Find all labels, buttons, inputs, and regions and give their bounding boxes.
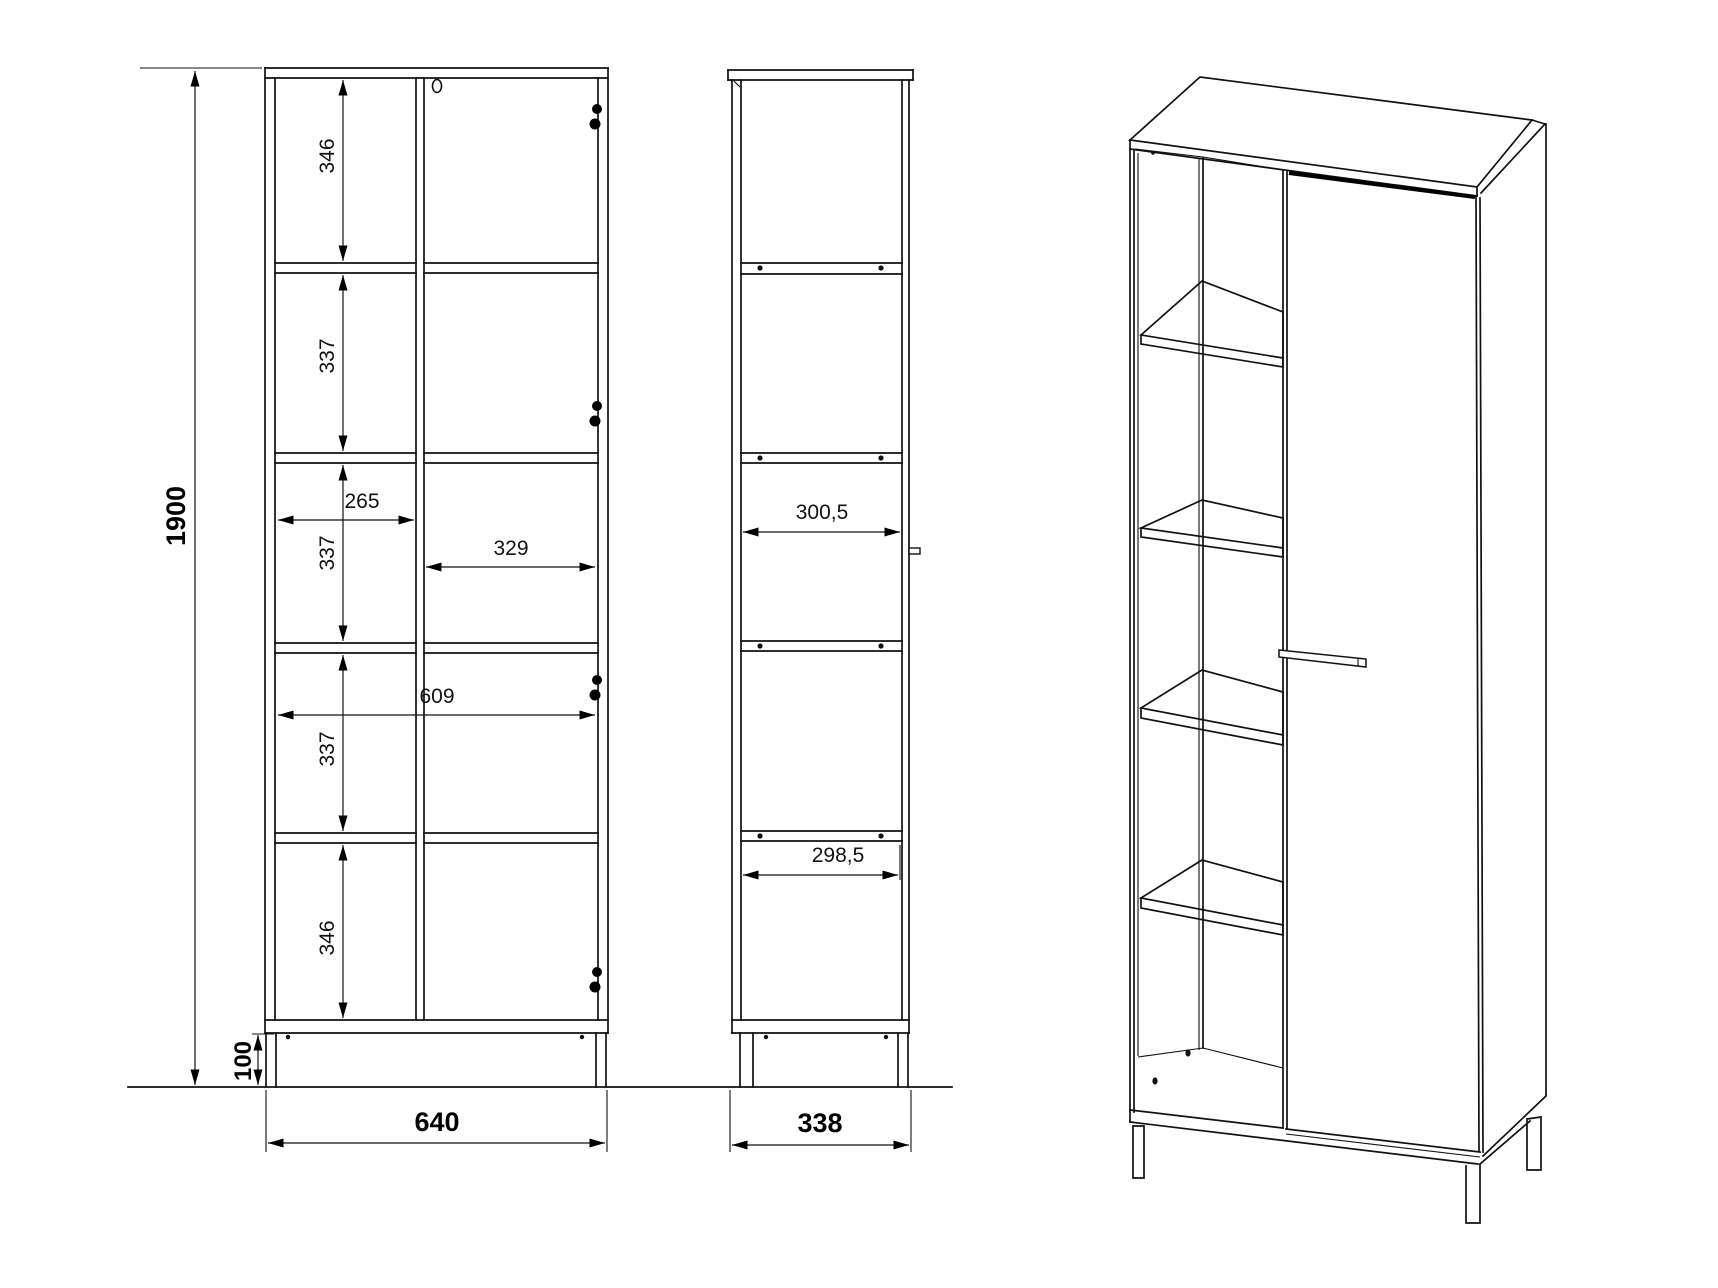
hinge-icon: [590, 967, 603, 993]
handle-3d: [1279, 650, 1366, 667]
shelf-3d: [1141, 860, 1283, 935]
cabinet-drawing: 1900 346 337 337 337 346 265 329 609 100…: [0, 0, 1718, 1288]
dim-overall-depth: 338: [797, 1108, 842, 1138]
door-bottom: [1286, 1129, 1480, 1152]
side-legs: [740, 1033, 908, 1087]
side-view: [728, 70, 920, 1087]
isometric-view: [1130, 77, 1546, 1223]
dim-leg-height: 100: [230, 1041, 257, 1081]
shelf-3d: [1141, 281, 1283, 367]
front-dimensions: 1900 346 337 337 337 346 265 329 609 100…: [140, 68, 607, 1152]
hinge-marks: [590, 104, 603, 993]
keyhole-icon: [433, 80, 442, 93]
front-legs: [266, 1033, 606, 1087]
hinge-icon: [590, 104, 603, 130]
dim-left-width: 265: [344, 490, 379, 513]
side-dimensions: 300,5 298,5 338: [730, 501, 911, 1152]
leg-3d: [1527, 1117, 1541, 1170]
leg-3d: [1466, 1165, 1480, 1223]
dim-section-4: 337: [316, 731, 339, 766]
dim-overall-height: 1900: [161, 486, 191, 546]
door-edge: [1476, 197, 1479, 1151]
handle-side-view: [909, 548, 920, 554]
technical-drawing-canvas: 1900 346 337 337 337 346 265 329 609 100…: [0, 0, 1718, 1288]
dim-depth-lower: 298,5: [812, 844, 865, 867]
dim-depth-upper: 300,5: [796, 501, 849, 524]
shelf-3d: [1141, 500, 1283, 557]
side-shelf-rails: [741, 263, 902, 841]
dim-section-5: 346: [316, 920, 339, 955]
hinge-icon: [590, 401, 603, 427]
hinge-icon: [590, 675, 603, 701]
leg-3d: [1133, 1126, 1144, 1178]
dim-internal-width: 609: [419, 685, 454, 708]
dim-right-width: 329: [493, 537, 528, 560]
dim-section-2: 337: [316, 338, 339, 373]
dim-section-3: 337: [316, 535, 339, 570]
dim-section-1: 346: [316, 138, 339, 173]
top-panel: [1130, 77, 1532, 187]
door-top-gap: [1289, 173, 1475, 197]
dim-overall-width: 640: [414, 1107, 459, 1137]
shelf-3d: [1141, 670, 1283, 745]
